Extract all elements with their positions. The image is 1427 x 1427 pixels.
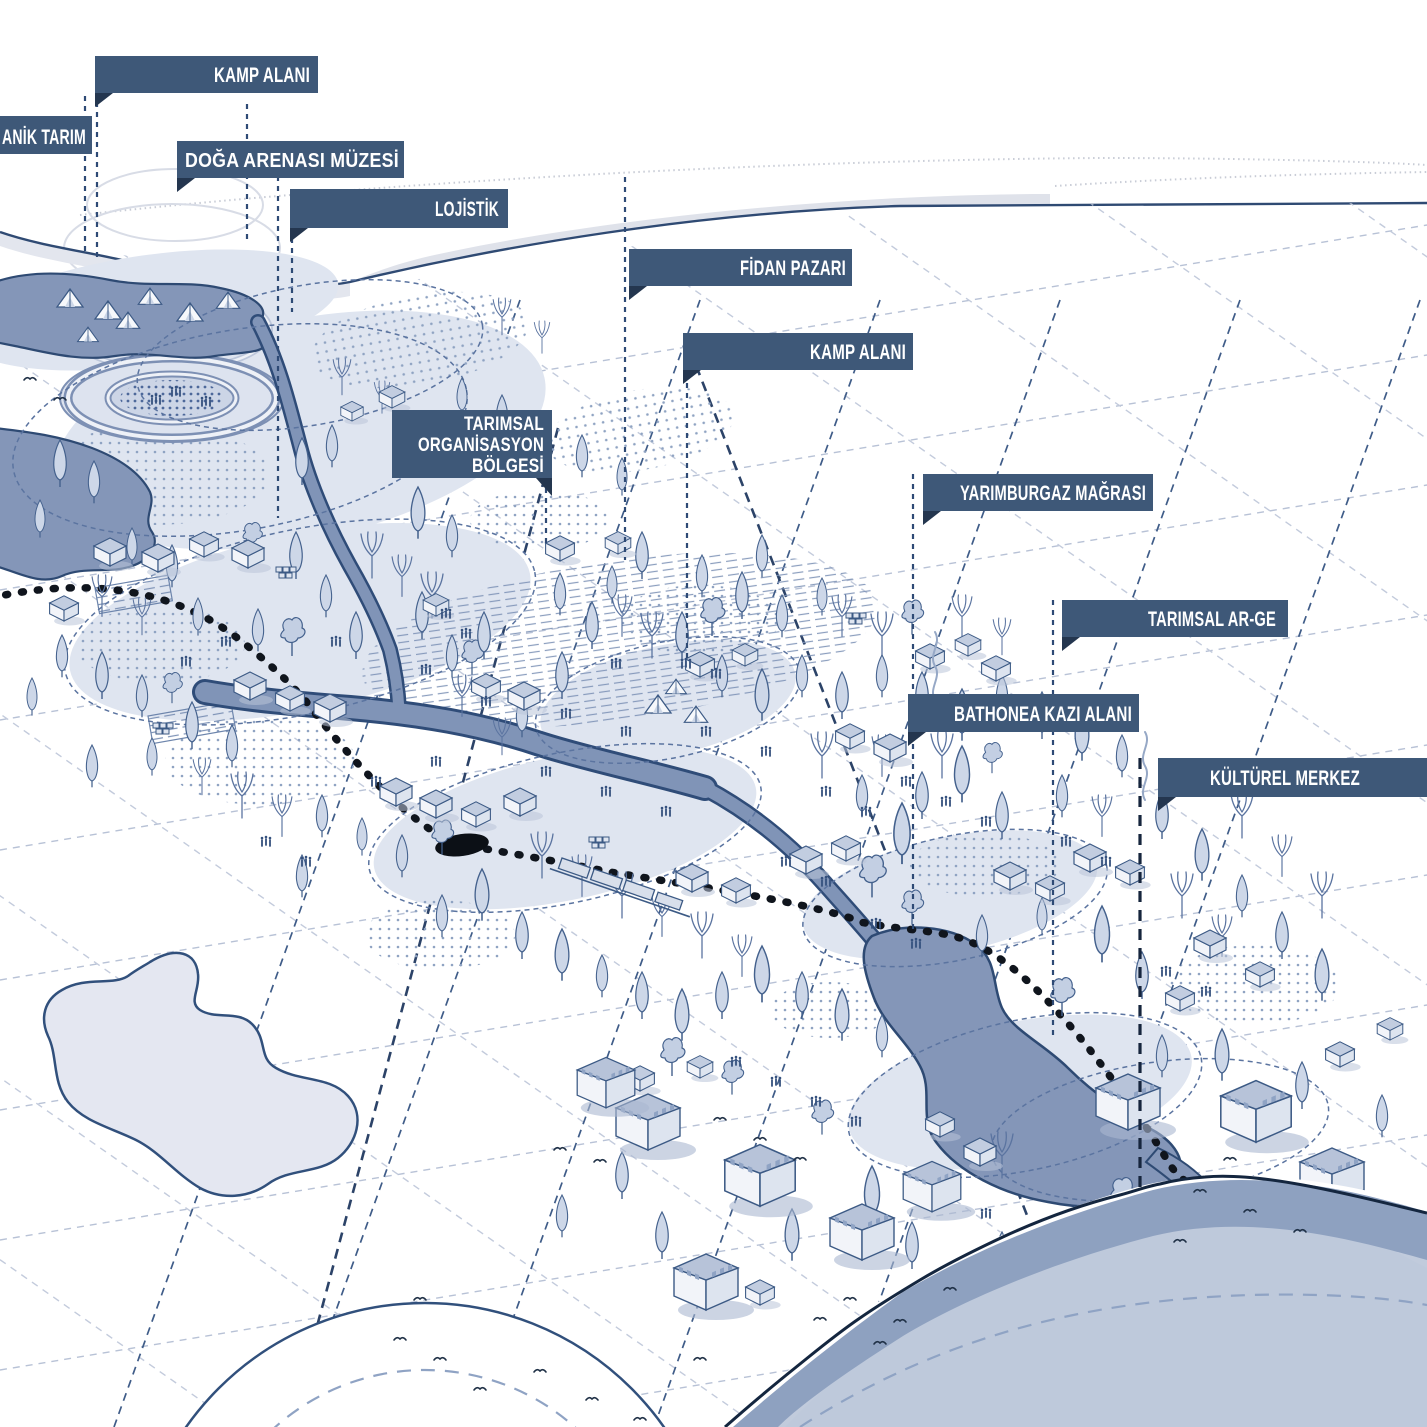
- cottage: [1116, 860, 1151, 890]
- cypress-tree: [1376, 1095, 1387, 1137]
- cypress-tree: [555, 929, 569, 981]
- label-organik-tarim: ANİK TARIM: [0, 116, 92, 154]
- people-cluster: [441, 608, 452, 618]
- cypress-tree: [675, 989, 689, 1041]
- label-text: ANİK TARIM: [2, 126, 86, 149]
- cottage: [687, 1056, 718, 1082]
- cottage: [874, 734, 913, 767]
- label-doga-arenasi-muzesi: DOĞA ARENASI MÜZESİ: [177, 141, 404, 192]
- building: [1221, 1081, 1309, 1154]
- cypress-tree: [755, 946, 770, 1002]
- cypress-tree: [955, 746, 970, 802]
- cypress-tree: [1236, 875, 1247, 917]
- people-cluster: [911, 938, 922, 948]
- dry-pond: [44, 953, 357, 1196]
- label-kamp-alani-1: KAMP ALANI: [95, 56, 318, 107]
- label-text-line3: BÖLGESİ: [472, 456, 544, 477]
- people-cluster: [781, 856, 792, 866]
- people-cluster: [221, 636, 232, 646]
- people-cluster: [941, 796, 952, 806]
- people-cluster: [761, 746, 772, 756]
- people-cluster: [181, 656, 192, 666]
- cottage: [790, 846, 829, 879]
- cottage: [832, 836, 867, 866]
- cottage: [746, 1280, 781, 1310]
- label-kulturel-merkez: KÜLTÜREL MERKEZ: [1158, 758, 1427, 811]
- bare-tree: [691, 912, 713, 958]
- bare-tree: [931, 732, 953, 778]
- bare-tree: [811, 732, 833, 778]
- cypress-tree: [716, 972, 729, 1019]
- label-fidan-pazari: FİDAN PAZARI: [629, 249, 852, 300]
- people-cluster: [421, 664, 432, 674]
- bare-tree: [732, 935, 752, 976]
- cottage: [722, 878, 757, 908]
- masterplan-svg: ANİK TARIM KAMP ALANI DOĞA ARENASI MÜZES…: [0, 0, 1427, 1427]
- bird: [554, 1148, 566, 1150]
- label-text: BATHONEA KAZI ALANI: [954, 703, 1132, 726]
- people-cluster: [431, 756, 442, 766]
- people-cluster: [711, 668, 722, 678]
- people-cluster: [621, 726, 632, 736]
- cottage: [676, 864, 715, 897]
- people-cluster: [611, 658, 622, 668]
- bare-tree: [534, 321, 549, 353]
- label-text-line2: ORGANİSASYON: [418, 435, 544, 456]
- label-text: LOJİSTİK: [435, 198, 499, 221]
- people-cluster: [851, 1116, 862, 1126]
- cypress-tree: [27, 678, 37, 716]
- cypress-tree: [785, 1209, 799, 1261]
- cottage: [1074, 844, 1113, 877]
- people-cluster: [661, 806, 672, 816]
- bird: [714, 1118, 726, 1120]
- bird: [594, 1160, 606, 1162]
- cypress-tree: [916, 772, 929, 819]
- people-cluster: [541, 766, 552, 776]
- people-cluster: [561, 708, 572, 718]
- people-cluster: [601, 786, 612, 796]
- cypress-tree: [357, 818, 367, 856]
- people-cluster: [901, 776, 912, 786]
- cypress-tree: [656, 1212, 669, 1259]
- label-text-line1: TARIMSAL: [464, 414, 544, 435]
- people-cluster: [261, 836, 272, 846]
- people-cluster: [681, 658, 692, 668]
- cottage: [1194, 930, 1233, 963]
- cypress-tree: [1195, 829, 1209, 881]
- people-cluster: [1201, 986, 1212, 996]
- people-cluster: [201, 396, 212, 406]
- people-cluster: [981, 816, 992, 826]
- people-cluster: [701, 726, 712, 736]
- cypress-tree: [1136, 952, 1149, 999]
- people-cluster: [821, 786, 832, 796]
- cypress-tree: [876, 655, 887, 697]
- cottage: [380, 778, 419, 811]
- people-cluster: [811, 1096, 822, 1106]
- label-text: DOĞA ARENASI MÜZESİ: [185, 148, 399, 172]
- bare-tree: [993, 618, 1011, 655]
- bird: [844, 1298, 856, 1300]
- people-cluster: [301, 856, 312, 866]
- leafy-tree: [1051, 978, 1075, 1016]
- people-cluster: [771, 1076, 782, 1086]
- label-yarimburgaz-magrasi: YARIMBURGAZ MAĞRASI: [923, 474, 1153, 525]
- people-cluster: [981, 1208, 992, 1218]
- label-text: TARIMSAL AR-GE: [1148, 608, 1276, 631]
- bird: [1224, 1158, 1236, 1160]
- building: [830, 1204, 910, 1270]
- cypress-tree: [1116, 735, 1127, 777]
- cottage: [605, 532, 636, 558]
- cottage: [1377, 1018, 1408, 1044]
- cypress-tree: [556, 1195, 567, 1237]
- people-cluster: [871, 918, 882, 928]
- people-cluster: [1061, 836, 1072, 846]
- cottage: [1326, 1042, 1361, 1072]
- label-kamp-alani-2: KAMP ALANI: [683, 333, 913, 384]
- pond-and-arch: [44, 953, 717, 1427]
- cypress-tree: [1095, 906, 1110, 962]
- people-cluster: [151, 394, 162, 404]
- people-cluster: [371, 776, 382, 786]
- label-bathonea-kazi-alani: BATHONEA KAZI ALANI: [908, 694, 1139, 746]
- cypress-tree: [636, 972, 649, 1019]
- cottage: [982, 656, 1017, 686]
- leafy-tree: [661, 1038, 685, 1076]
- people-cluster: [331, 636, 342, 646]
- people-cluster: [461, 628, 472, 638]
- cypress-tree: [616, 1152, 629, 1199]
- leafy-tree: [983, 742, 1002, 773]
- arch-outline: [133, 1303, 717, 1427]
- masterplan-diagram: ANİK TARIM KAMP ALANI DOĞA ARENASI MÜZES…: [0, 0, 1427, 1427]
- faint-contour-dotted-2: [1055, 172, 1427, 186]
- people-cluster: [731, 1056, 742, 1066]
- cottage: [50, 596, 85, 626]
- bare-tree: [1272, 835, 1292, 876]
- cottage: [836, 724, 871, 754]
- bird: [24, 378, 36, 380]
- people-cluster: [481, 696, 492, 706]
- bird: [694, 1358, 706, 1360]
- cypress-tree: [596, 955, 607, 997]
- label-text: KÜLTÜREL MERKEZ: [1210, 767, 1360, 790]
- cottage: [955, 634, 986, 660]
- bare-tree: [1092, 795, 1112, 836]
- bird: [754, 1138, 766, 1140]
- label-text: YARIMBURGAZ MAĞRASI: [960, 481, 1146, 505]
- building: [725, 1145, 813, 1218]
- label-tarimsal-arge: TARIMSAL AR-GE: [1062, 600, 1288, 651]
- people-cluster: [1161, 966, 1172, 976]
- people-cluster: [1101, 856, 1112, 866]
- people-cluster: [821, 876, 832, 886]
- cypress-tree: [56, 635, 67, 677]
- label-text: KAMP ALANI: [214, 64, 310, 87]
- bare-tree: [1311, 872, 1333, 918]
- people-cluster: [171, 386, 182, 396]
- cypress-tree: [86, 745, 97, 787]
- bird: [814, 1318, 826, 1320]
- label-text: FİDAN PAZARI: [740, 257, 846, 280]
- label-text: KAMP ALANI: [810, 341, 906, 364]
- cypress-tree: [1296, 1062, 1309, 1109]
- bare-tree: [1171, 872, 1193, 918]
- bare-tree: [952, 595, 972, 636]
- building: [674, 1254, 754, 1320]
- cypress-tree: [1215, 1029, 1229, 1081]
- cypress-tree: [516, 912, 529, 959]
- cypress-tree: [316, 795, 327, 837]
- people-cluster: [861, 806, 872, 816]
- label-lojistik: LOJİSTİK: [290, 189, 508, 242]
